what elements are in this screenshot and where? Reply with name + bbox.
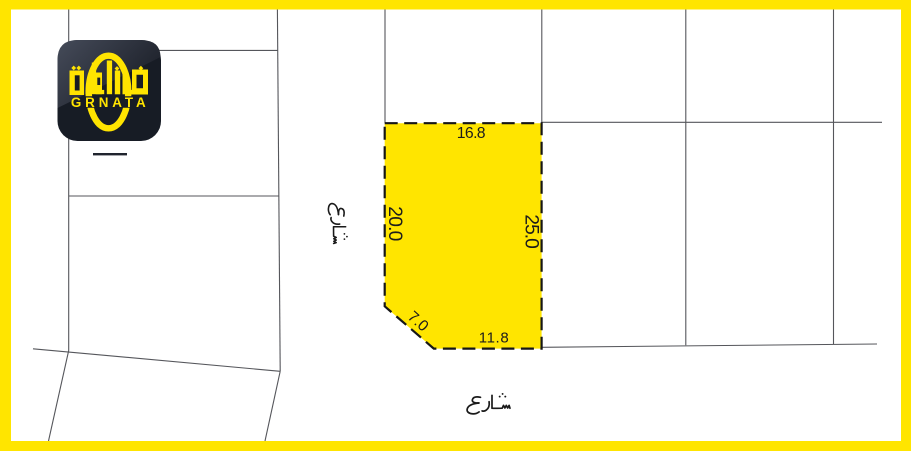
svg-text:16.8: 16.8 — [457, 125, 486, 142]
svg-text:25.0: 25.0 — [521, 214, 542, 248]
svg-text:GRNATA: GRNATA — [71, 95, 150, 110]
svg-text:20.0: 20.0 — [384, 206, 405, 241]
svg-text:11.8: 11.8 — [479, 330, 509, 347]
